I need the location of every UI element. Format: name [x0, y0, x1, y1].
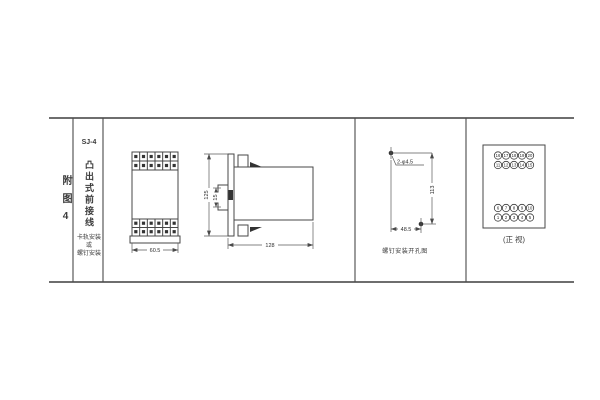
terminal-number: 5: [529, 215, 532, 220]
side-clip-dim-label: 15: [212, 193, 220, 203]
terminal-number: 6: [497, 206, 500, 211]
svg-text:48.5: 48.5: [401, 227, 412, 233]
drawing-sheet: 60.5 125: [0, 0, 600, 400]
svg-text:15: 15: [213, 194, 219, 200]
terminal-number: 18: [512, 153, 517, 158]
terminal-screw: [165, 230, 168, 233]
side-depth-dim-label: 128: [262, 242, 278, 250]
terminal-number: 15: [528, 163, 533, 168]
figure-index-label: 附图4: [58, 175, 73, 230]
terminal-screw: [173, 164, 176, 167]
din-rail-clip: [218, 185, 228, 210]
terminal-screw: [150, 230, 153, 233]
terminal-number: 7: [505, 206, 508, 211]
terminal-screw: [134, 164, 137, 167]
terminal-number: 11: [496, 163, 501, 168]
mounting-note-line2: 或: [71, 242, 107, 250]
terminal-number: 20: [528, 153, 533, 158]
svg-text:60.5: 60.5: [150, 248, 161, 254]
drill-vertical-dim-label: 113: [428, 183, 436, 197]
svg-text:128: 128: [265, 243, 274, 249]
mounting-note-line1: 卡轨安装: [71, 234, 107, 242]
front-base-plate: [130, 236, 180, 243]
terminal-screw: [157, 155, 160, 158]
terminal-layout-caption: (正 视): [492, 234, 536, 245]
terminal-screw: [142, 155, 145, 158]
terminal-number: 2: [505, 215, 508, 220]
terminal-number: 16: [496, 153, 501, 158]
terminal-number: 14: [520, 163, 525, 168]
svg-text:125: 125: [204, 190, 210, 199]
terminal-number: 19: [520, 153, 525, 158]
terminal-screw: [173, 222, 176, 225]
model-label: SJ-4: [72, 139, 106, 146]
front-terminal-screws: [134, 152, 176, 236]
terminal-number: 9: [521, 206, 524, 211]
terminal-screw: [173, 230, 176, 233]
front-width-dim-label: 60.5: [147, 247, 163, 255]
terminal-screw: [142, 222, 145, 225]
terminal-screw: [150, 155, 153, 158]
terminal-screw: [157, 230, 160, 233]
hole-size-label: 2-φ4.5: [397, 160, 413, 166]
terminal-screw: [150, 222, 153, 225]
drill-diagram-caption: 螺钉安装开孔图: [374, 246, 436, 255]
terminal-screw: [157, 164, 160, 167]
side-body: [234, 167, 313, 220]
mounting-note: 卡轨安装 或 螺钉安装: [71, 234, 107, 258]
mounting-note-line3: 螺钉安装: [71, 250, 107, 258]
terminal-number: 13: [512, 163, 517, 168]
side-view: 125 15 128: [202, 154, 313, 249]
terminal-screw: [165, 164, 168, 167]
terminal-number: 10: [528, 206, 533, 211]
terminal-screw: [142, 164, 145, 167]
terminal-screw: [165, 155, 168, 158]
terminal-screw: [173, 155, 176, 158]
svg-text:113: 113: [430, 186, 436, 195]
drill-horizontal-dim-label: 48.5: [398, 226, 414, 234]
terminal-number: 4: [521, 215, 524, 220]
terminal-screw: [134, 222, 137, 225]
terminal-screw: [165, 222, 168, 225]
terminal-number: 17: [504, 153, 509, 158]
terminal-screw: [134, 230, 137, 233]
drill-diagram: 2-φ4.5 113 48.5: [389, 147, 436, 233]
terminal-screw: [157, 222, 160, 225]
terminal-number: 3: [513, 215, 516, 220]
terminal-number: 12: [504, 163, 509, 168]
terminal-screw: [150, 164, 153, 167]
terminal-layout: 1617181920111213141567891012345: [483, 145, 545, 228]
front-view: 60.5: [130, 152, 180, 254]
band-frame: [49, 118, 574, 282]
terminal-rows: 1617181920111213141567891012345: [494, 152, 533, 221]
terminal-screw: [142, 230, 145, 233]
side-height-dim-label: 125: [202, 188, 210, 202]
terminal-screw: [134, 155, 137, 158]
terminal-number: 1: [497, 215, 500, 220]
wiring-type-label: 凸出式前接线: [83, 160, 96, 229]
terminal-number: 8: [513, 206, 516, 211]
